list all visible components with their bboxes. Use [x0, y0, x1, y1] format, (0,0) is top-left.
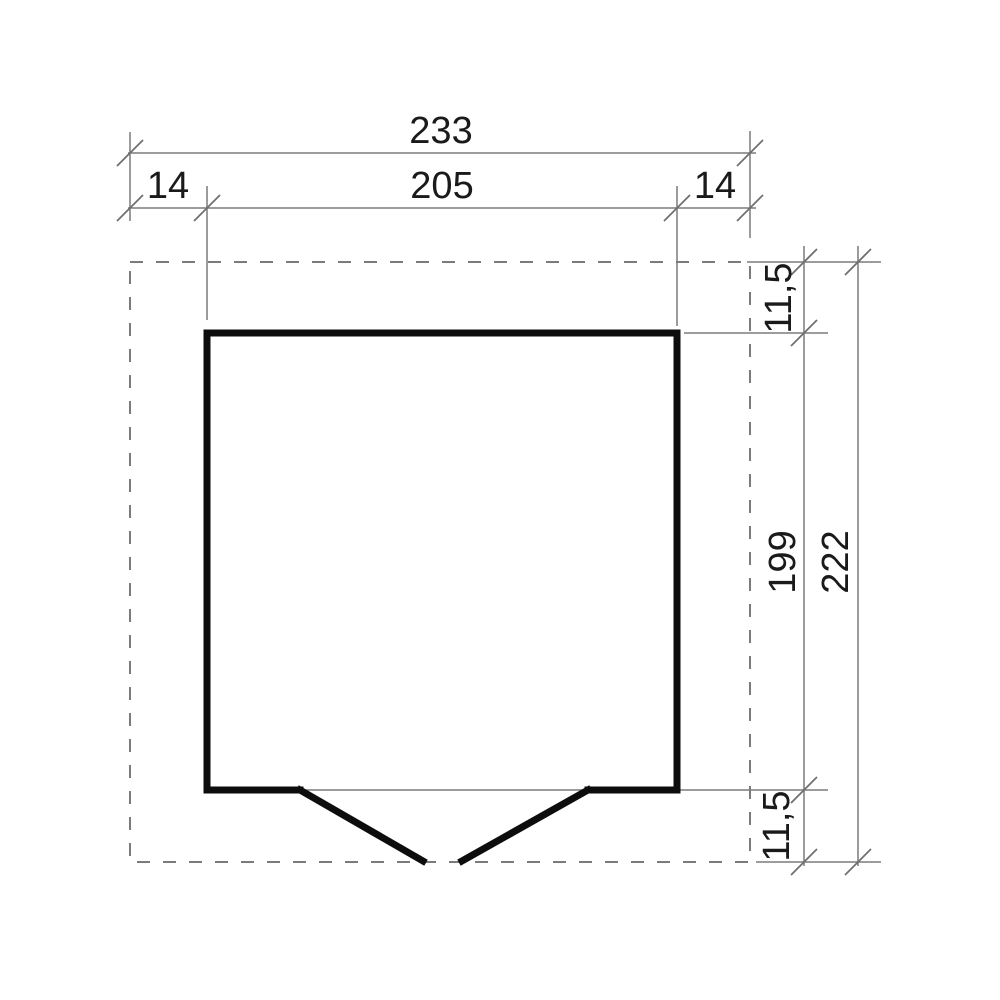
walls	[207, 333, 677, 861]
label-inner-height: 199	[762, 530, 804, 593]
technical-drawing: 233 14 205 14 11,5 199 222 11,5	[0, 0, 1000, 1000]
wall-outline	[207, 333, 677, 790]
label-bottom-overhang: 11,5	[756, 790, 798, 861]
label-total-width: 233	[409, 110, 472, 152]
label-total-height: 222	[815, 530, 857, 593]
dimension-lines	[128, 153, 858, 866]
label-left-overhang: 14	[147, 165, 189, 207]
label-right-overhang: 14	[694, 165, 736, 207]
extension-lines	[130, 131, 881, 862]
tick-marks	[117, 140, 871, 875]
label-top-overhang: 11,5	[758, 262, 800, 333]
roof-overhang-outline	[130, 262, 750, 862]
label-inner-width: 205	[410, 165, 473, 207]
roof-outline-rect	[130, 262, 750, 862]
shed-floorplan-svg: 233 14 205 14 11,5 199 222 11,5	[0, 0, 1000, 1000]
door-leaf-right	[462, 790, 588, 861]
door-leaf-left	[300, 790, 423, 861]
